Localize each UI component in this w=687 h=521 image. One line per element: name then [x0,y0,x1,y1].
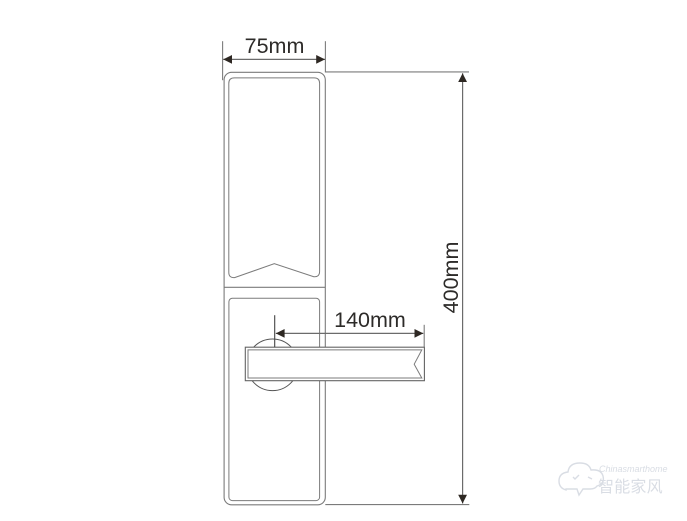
svg-text:Chinasmarthome: Chinasmarthome [599,464,668,474]
svg-text:智能家风: 智能家风 [598,478,663,496]
svg-text:75mm: 75mm [245,34,305,58]
svg-text:400mm: 400mm [439,242,463,314]
svg-text:140mm: 140mm [334,308,406,332]
